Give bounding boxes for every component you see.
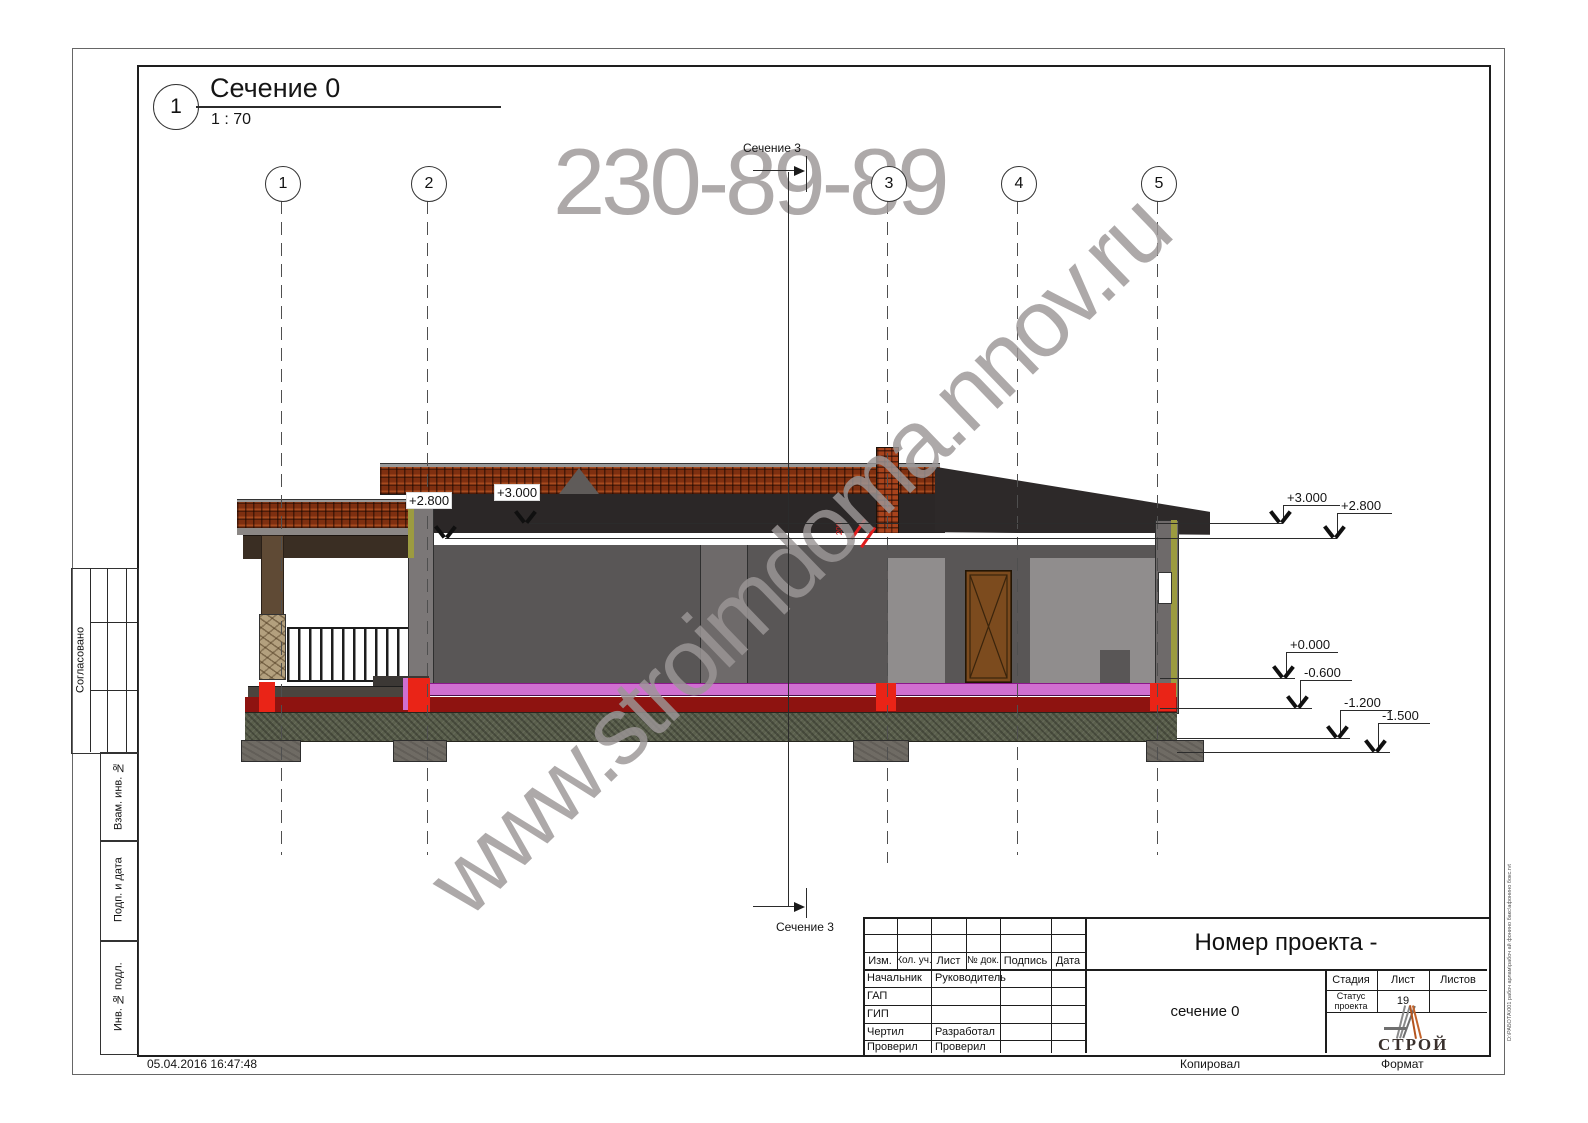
grid-bubble-3: 3	[871, 166, 907, 202]
stamp-row-role: Начальник	[863, 969, 935, 987]
leader-3000	[528, 523, 1283, 524]
elev-r4-label: -0.600	[1304, 665, 1341, 680]
sidebar-label-inv-podl: Инв. № подл.	[100, 940, 137, 1053]
sheet-label: Лист	[1377, 969, 1429, 990]
stamp-header-sign: Подпись	[1000, 952, 1051, 969]
approval-row-2	[90, 690, 137, 691]
view-number: 1	[170, 95, 182, 119]
sidebar-label-approved: Согласовано	[71, 568, 90, 752]
leader-0000	[1160, 678, 1295, 679]
section-bottom-arrow-icon	[794, 902, 805, 912]
elev-r6-label: -1.500	[1382, 708, 1419, 723]
wall-right-frame-detail	[1158, 572, 1172, 604]
stamp-v5	[1051, 917, 1052, 1053]
section-bottom-leader	[753, 906, 798, 907]
elev-r6-underline	[1378, 723, 1430, 724]
footing-4	[1146, 740, 1204, 762]
copied-label: Копировал	[1180, 1057, 1240, 1071]
elev-r5-label: -1.200	[1344, 695, 1381, 710]
stamp-header-kol: Кол. уч.	[897, 952, 931, 969]
view-title: Сечение 0	[210, 73, 340, 104]
section-bottom-tick	[806, 888, 807, 918]
elev-r1-label: +3.000	[1287, 490, 1327, 505]
drawing-sheet: 1 Сечение 0 1 : 70 1 2 3 4 5 Сечение 3 С…	[0, 0, 1588, 1123]
interior-light-notch	[1100, 650, 1130, 683]
cut-red-block-4	[1150, 683, 1176, 711]
logo-crossbar	[1384, 1027, 1406, 1030]
interior-door	[965, 570, 1012, 683]
approval-row-1	[90, 622, 137, 623]
stamp-h1	[863, 934, 1085, 935]
leader-m1200	[1177, 738, 1350, 739]
leader-m0600	[1160, 708, 1312, 709]
stamp-header-izm: Изм.	[863, 952, 897, 969]
stamp-row-role: Проверил	[863, 1040, 935, 1053]
sidebar-label-podp-data: Подп. и дата	[100, 840, 137, 940]
elev-r1-arrow-icon	[1271, 511, 1289, 523]
section-top-tick	[806, 156, 807, 192]
section-label-bottom: Сечение 3	[776, 920, 834, 934]
elev-r3-label: +0.000	[1290, 637, 1330, 652]
grid-bubble-4: 4	[1001, 166, 1037, 202]
view-scale: 1 : 70	[211, 111, 251, 129]
grid-bubble-5: 5	[1141, 166, 1177, 202]
sheet-name: сечение 0	[1085, 969, 1325, 1053]
interior-light-block-right	[1030, 558, 1157, 683]
approval-col-3	[126, 568, 127, 752]
stamp-row-name	[931, 1005, 1004, 1023]
elev-r2-arrow-icon	[1325, 526, 1343, 538]
leader-m1500	[1177, 752, 1390, 753]
footing-2	[393, 740, 447, 762]
grid-line-2	[427, 201, 428, 855]
view-number-bubble: 1	[153, 84, 199, 130]
cut-red-block-1	[259, 682, 275, 712]
stamp-header-doc: № док.	[966, 952, 1000, 969]
section-line	[788, 172, 789, 906]
approval-col-1	[90, 568, 91, 752]
section-top-leader	[753, 170, 798, 171]
grid-bubble-1: 1	[265, 166, 301, 202]
elev-left-3000: +3.000	[494, 484, 540, 501]
wall-cut-left-olive	[408, 502, 414, 558]
elev-r2-underline	[1337, 513, 1392, 514]
elev-r1-underline	[1283, 505, 1340, 506]
elev-left-3000-arrow-icon	[516, 511, 534, 523]
elev-r4-arrow-icon	[1288, 696, 1306, 708]
stamp-header-date: Дата	[1051, 952, 1085, 969]
stamp-row-name: Проверил	[931, 1040, 1004, 1053]
section-top-arrow-icon	[794, 166, 805, 176]
elev-r6-arrow-icon	[1366, 740, 1384, 752]
elev-r2-label: +2.800	[1341, 498, 1381, 513]
logo-text: СТРОЙ	[1378, 1035, 1448, 1055]
grid-line-1	[281, 201, 282, 855]
approval-col-2	[107, 568, 108, 752]
file-path-vertical: D:\РАБОТА\001 рабоч арлам\рабоч ай фонин…	[1504, 855, 1516, 1050]
wall-right-olive	[1171, 520, 1177, 710]
grid-line-5	[1157, 201, 1158, 855]
elev-r5-arrow-icon	[1328, 726, 1346, 738]
section-label-top: Сечение 3	[743, 141, 801, 155]
sheets-label: Листов	[1429, 969, 1487, 990]
cut-red-block-3	[876, 683, 896, 711]
format-label: Формат	[1381, 1057, 1424, 1071]
company-logo: СТРОЙ	[1370, 1005, 1445, 1053]
porch-railing	[287, 627, 408, 682]
floor-pink-insulation	[428, 683, 1168, 696]
print-timestamp: 05.04.2016 16:47:48	[147, 1057, 257, 1071]
leader-2800	[445, 538, 1337, 539]
stamp-row-role: ГАП	[863, 987, 935, 1005]
stamp-row-name: Разработал	[931, 1023, 1004, 1040]
grid-bubble-2: 2	[411, 166, 447, 202]
sidebar-label-vzam-inv: Взам. инв. №	[100, 752, 137, 840]
footing-1	[241, 740, 301, 762]
porch-roof-tiles	[237, 502, 412, 529]
interior-light-block-left	[888, 558, 945, 683]
stamp-header-list: Лист	[931, 952, 966, 969]
stamp-row-role: ГИП	[863, 1005, 935, 1023]
elev-r3-underline	[1286, 652, 1338, 653]
view-title-underline	[196, 106, 501, 108]
porch-fascia	[237, 528, 412, 535]
elev-left-2800-arrow-icon	[436, 526, 454, 538]
elev-left-2800: +2.800	[406, 492, 452, 509]
stage-label: Стадия	[1325, 969, 1377, 990]
stamp-row-role: Чертил	[863, 1023, 935, 1040]
stamp-row-name: Руководитель	[931, 969, 1004, 987]
stamp-row-name	[931, 987, 1004, 1005]
project-title: Номер проекта -	[1085, 917, 1487, 969]
elev-r3-arrow-icon	[1274, 666, 1292, 678]
footing-3	[853, 740, 909, 762]
elev-r4-underline	[1300, 680, 1352, 681]
